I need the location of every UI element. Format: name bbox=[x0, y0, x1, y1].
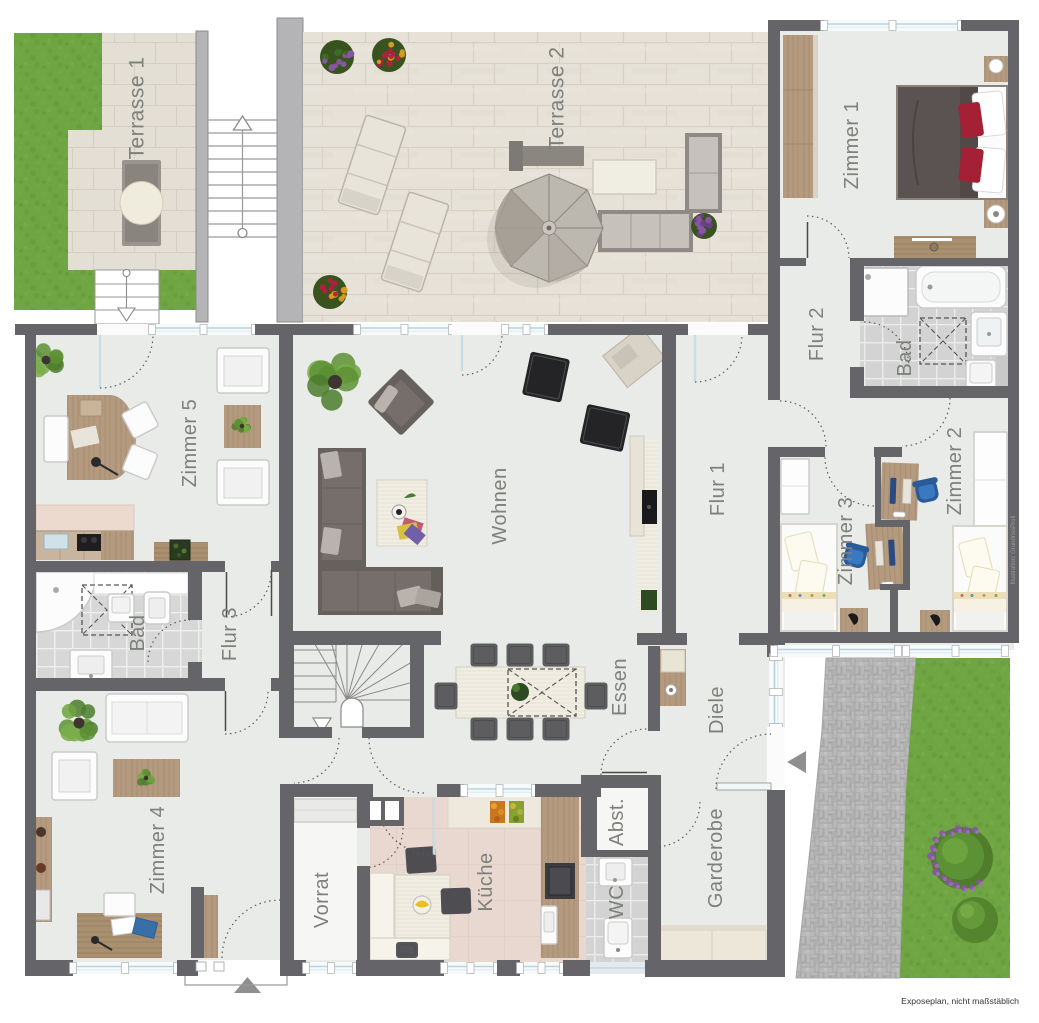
svg-text:Bad: Bad bbox=[127, 614, 149, 651]
svg-text:Abst.: Abst. bbox=[606, 798, 628, 846]
svg-text:Vorrat: Vorrat bbox=[311, 872, 333, 928]
svg-text:WC: WC bbox=[606, 885, 628, 919]
svg-text:Terrasse 1: Terrasse 1 bbox=[126, 56, 149, 159]
svg-text:Illustration: GrundrissProfi: Illustration: GrundrissProfi bbox=[1011, 515, 1017, 584]
svg-text:Zimmer 4: Zimmer 4 bbox=[147, 806, 169, 894]
svg-text:Küche: Küche bbox=[475, 852, 497, 911]
svg-text:Zimmer 1: Zimmer 1 bbox=[841, 101, 863, 189]
svg-text:Garderobe: Garderobe bbox=[705, 808, 727, 908]
svg-text:Essen: Essen bbox=[609, 658, 631, 716]
svg-text:Bad: Bad bbox=[894, 339, 916, 376]
svg-text:Flur 1: Flur 1 bbox=[707, 462, 729, 516]
svg-text:Wohnen: Wohnen bbox=[489, 467, 511, 544]
svg-text:Diele: Diele bbox=[706, 686, 728, 734]
svg-text:Terrasse 2: Terrasse 2 bbox=[546, 46, 569, 149]
svg-text:Flur 2: Flur 2 bbox=[806, 307, 828, 361]
svg-text:Zimmer 5: Zimmer 5 bbox=[179, 399, 201, 487]
svg-text:Zimmer 2: Zimmer 2 bbox=[944, 427, 966, 515]
svg-text:Zimmer 3: Zimmer 3 bbox=[835, 497, 857, 585]
svg-text:Flur 3: Flur 3 bbox=[219, 607, 241, 661]
svg-text:Exposeplan, nicht maßstäblich: Exposeplan, nicht maßstäblich bbox=[901, 996, 1019, 1006]
